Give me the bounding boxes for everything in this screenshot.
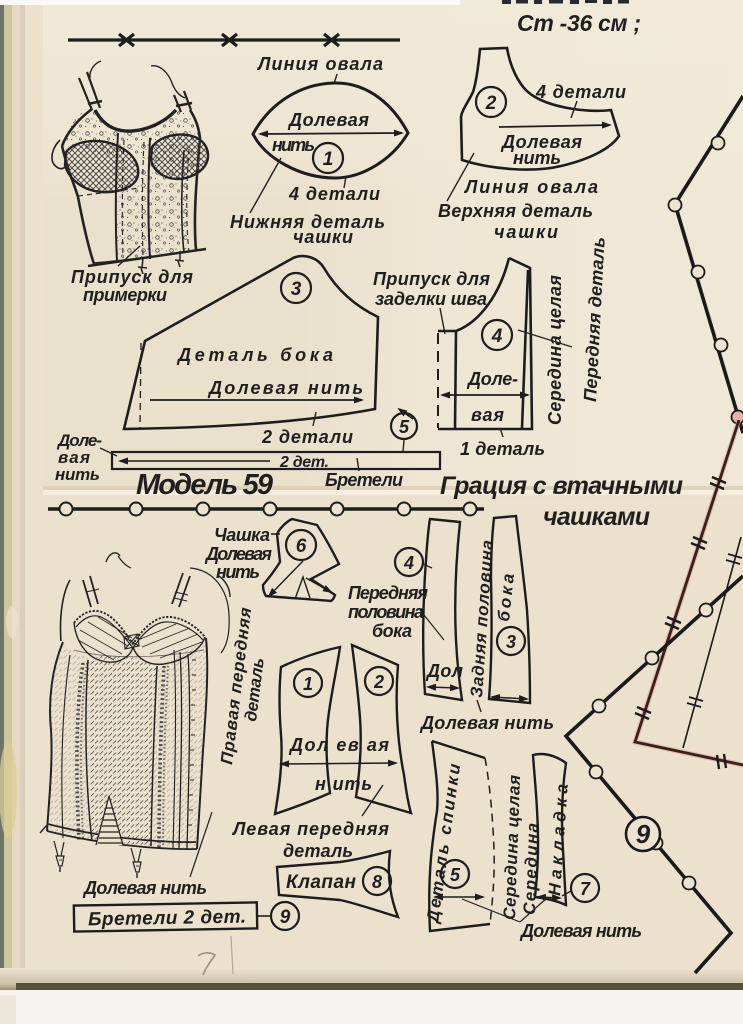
svg-text:деталь: деталь [283,841,353,861]
svg-text:Долевая нить: Долевая нить [82,878,207,898]
svg-text:половина: половина [348,602,424,622]
svg-text:Припуск для: Припуск для [71,267,193,287]
svg-text:2: 2 [373,672,384,692]
svg-text:нить: нить [272,135,315,155]
svg-text:Середина целая: Середина целая [545,275,565,425]
svg-text:9: 9 [280,907,291,928]
svg-text:чашки: чашки [494,222,558,242]
svg-text:Доле-: Доле- [466,369,518,389]
svg-text:Долевая: Долевая [204,544,272,564]
svg-text:Линия овала: Линия овала [463,177,598,197]
svg-text:7: 7 [580,879,591,899]
svg-text:чашки: чашки [293,227,353,247]
svg-text:н ить: н ить [315,774,372,794]
svg-text:Чашка: Чашка [214,525,270,545]
svg-text:3: 3 [506,632,516,652]
svg-text:Клапан: Клапан [286,872,357,893]
svg-text:примерки: примерки [83,285,167,305]
svg-text:Бретели 2 дет.: Бретели 2 дет. [88,907,246,931]
svg-text:нить: нить [55,465,100,484]
svg-text:Ст -36 см ;: Ст -36 см ; [517,10,641,36]
svg-text:6: 6 [296,536,307,557]
svg-text:Грация с втачными: Грация с втачными [440,472,683,500]
svg-text:1 деталь: 1 деталь [460,439,545,459]
svg-text:Левая передняя: Левая передняя [231,819,389,839]
svg-text:2 детали: 2 детали [261,427,353,447]
svg-text:Линия овала: Линия овала [256,54,383,74]
svg-text:4 детали: 4 детали [535,82,626,102]
svg-text:Передняя: Передняя [348,583,428,603]
svg-text:5: 5 [450,865,461,885]
svg-text:1: 1 [323,149,334,170]
svg-text:2: 2 [485,93,497,114]
svg-text:чашками: чашками [543,503,650,531]
svg-text:Модель 59: Модель 59 [136,469,273,501]
svg-text:3: 3 [291,279,302,300]
svg-text:2 дет.: 2 дет. [279,454,329,471]
svg-text:Долевая нить: Долевая нить [207,378,363,398]
svg-text:Долевая нить: Долевая нить [519,921,642,941]
svg-text:бока: бока [372,621,412,641]
svg-text:Бретели: Бретели [325,470,403,490]
svg-text:нить: нить [216,562,260,582]
svg-text:Припуск для: Припуск для [373,269,490,289]
svg-text:вая: вая [471,405,504,425]
svg-text:5: 5 [399,417,410,437]
svg-text:8: 8 [372,872,382,892]
svg-text:9: 9 [636,819,651,849]
svg-text:1: 1 [303,674,313,694]
svg-text:4: 4 [491,326,503,347]
svg-text:Верхняя деталь: Верхняя деталь [438,201,593,221]
svg-text:нить: нить [513,148,561,168]
svg-text:Долевая: Долевая [287,110,369,130]
svg-text:Дол: Дол [425,661,463,681]
svg-text:заделки шва: заделки шва [375,289,487,309]
svg-text:Долевая нить: Долевая нить [419,713,554,733]
svg-text:4: 4 [403,553,414,573]
svg-text:4 детали: 4 детали [288,184,380,204]
